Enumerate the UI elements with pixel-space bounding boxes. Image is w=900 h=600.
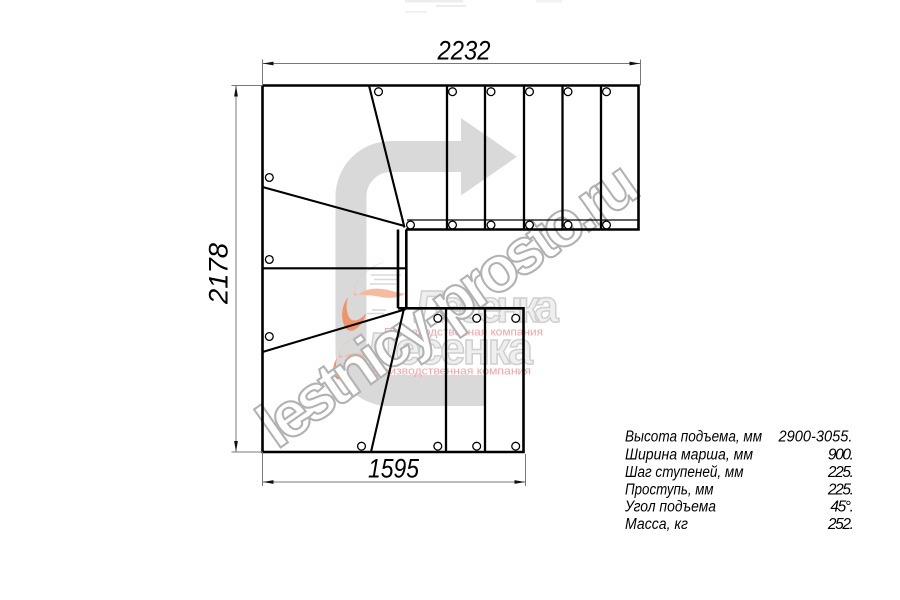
svg-text:Высота подъема, мм: Высота подъема, мм: [625, 429, 762, 446]
svg-text:1595: 1595: [368, 454, 420, 484]
svg-text:Ширина марша, мм: Ширина марша, мм: [625, 446, 753, 463]
svg-text:252.: 252.: [827, 516, 853, 533]
svg-text:Угол подъема: Угол подъема: [624, 499, 716, 516]
svg-text:2900-3055.: 2900-3055.: [778, 429, 853, 446]
svg-text:45°.: 45°.: [830, 499, 852, 516]
svg-text:2178: 2178: [204, 243, 234, 305]
svg-text:Шаг ступеней, мм: Шаг ступеней, мм: [625, 464, 744, 481]
svg-text:900.: 900.: [828, 446, 853, 463]
svg-text:2232: 2232: [437, 36, 491, 66]
svg-text:225.: 225.: [827, 464, 853, 481]
svg-text:225.: 225.: [827, 481, 853, 498]
svg-text:Проступь, мм: Проступь, мм: [625, 481, 714, 498]
svg-text:Масса, кг: Масса, кг: [625, 516, 688, 533]
